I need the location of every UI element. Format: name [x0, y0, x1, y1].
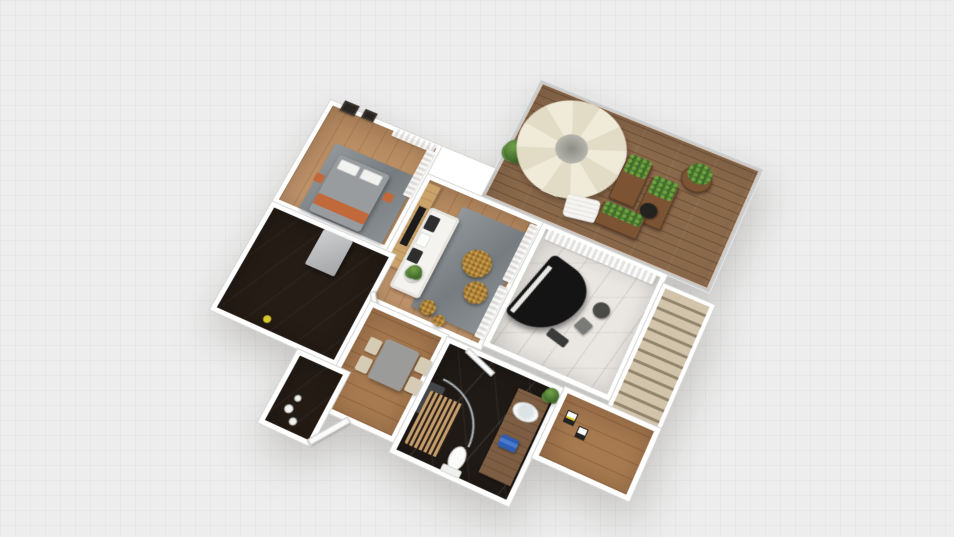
design-viewport	[0, 0, 954, 537]
floorplan-3d-render	[142, 4, 784, 537]
